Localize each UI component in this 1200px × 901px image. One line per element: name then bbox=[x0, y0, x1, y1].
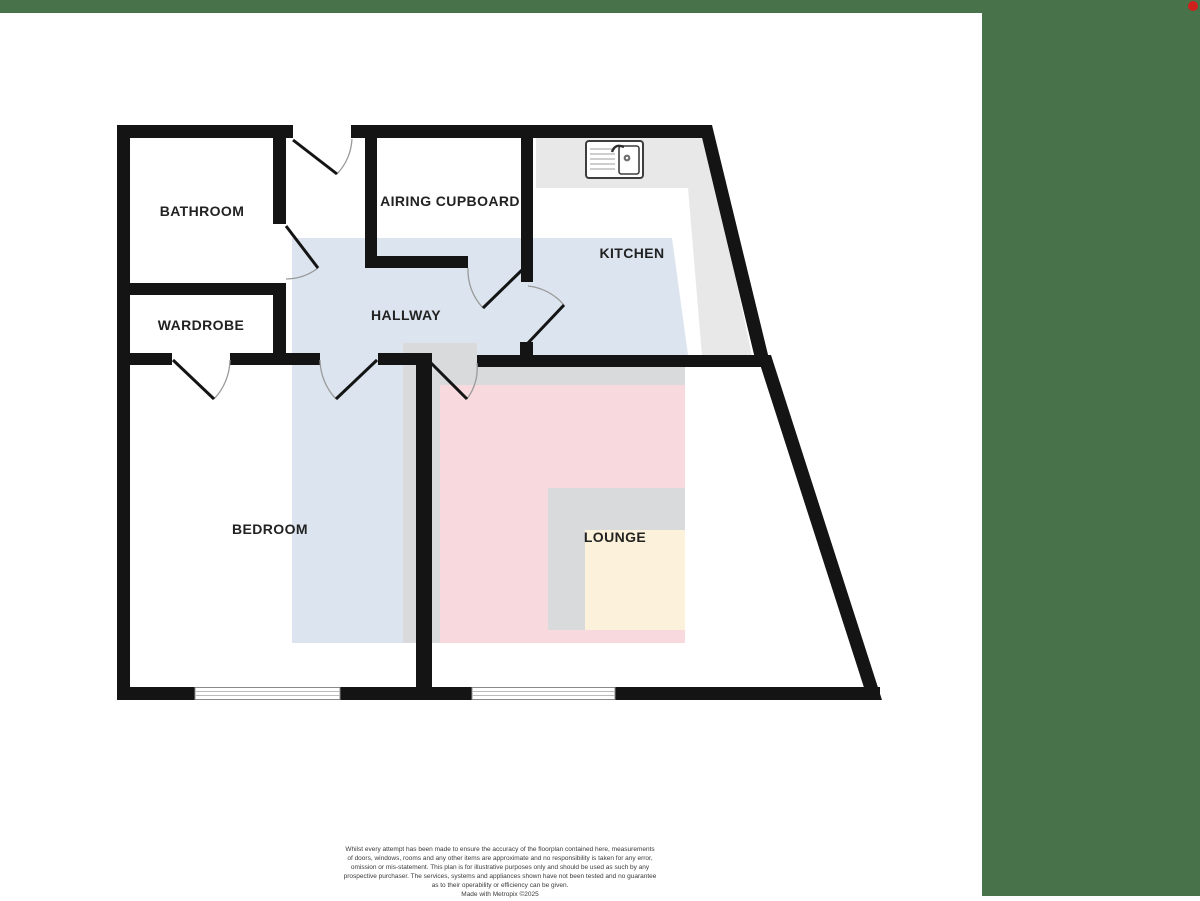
wall-bottom-a bbox=[117, 687, 195, 700]
wall-bathroom-right bbox=[273, 125, 286, 224]
wall-bedroom-top-b bbox=[230, 353, 320, 365]
room-label-hallway: HALLWAY bbox=[371, 307, 441, 323]
lounge-window bbox=[472, 688, 615, 700]
wall-kitchen-door-stub bbox=[520, 342, 533, 367]
zone-lounge-cream bbox=[585, 530, 685, 630]
disclaimer-line: of doors, windows, rooms and any other i… bbox=[200, 855, 800, 864]
disclaimer-line: omission or mis-statement. This plan is … bbox=[200, 864, 800, 873]
wall-bottom-b bbox=[340, 687, 472, 700]
wall-top-left bbox=[117, 125, 293, 138]
floorplan: BATHROOM AIRING CUPBOARD KITCHEN WARDROB… bbox=[0, 0, 1200, 896]
wall-bottom-c bbox=[615, 687, 880, 700]
disclaimer: Whilst every attempt has been made to en… bbox=[200, 846, 800, 900]
wall-airing-left bbox=[365, 125, 377, 268]
disclaimer-line: as to their operability or efficiency ca… bbox=[200, 882, 800, 891]
door-wardrobe bbox=[173, 360, 230, 399]
disclaimer-line: Whilst every attempt has been made to en… bbox=[200, 846, 800, 855]
wall-bedroom-top-a bbox=[117, 353, 172, 365]
room-label-bedroom: BEDROOM bbox=[232, 521, 308, 537]
disclaimer-credit: Made with Metropix ©2025 bbox=[200, 891, 800, 900]
door-entrance bbox=[293, 139, 352, 174]
sink-icon bbox=[586, 141, 643, 178]
floorplan-canvas: BATHROOM AIRING CUPBOARD KITCHEN WARDROB… bbox=[0, 0, 1200, 896]
room-label-lounge: LOUNGE bbox=[584, 529, 646, 545]
room-label-wardrobe: WARDROBE bbox=[158, 317, 244, 333]
wall-left bbox=[117, 125, 130, 700]
wall-bedroom-lounge-divider bbox=[416, 353, 432, 700]
wall-wardrobe-right bbox=[273, 283, 286, 365]
room-label-kitchen: KITCHEN bbox=[599, 245, 664, 261]
wall-slant-lower bbox=[757, 355, 882, 700]
disclaimer-line: prospective purchaser. The services, sys… bbox=[200, 873, 800, 882]
wall-bathroom-bottom bbox=[117, 283, 286, 295]
room-label-airing-cupboard: AIRING CUPBOARD bbox=[380, 193, 520, 209]
bedroom-window bbox=[195, 688, 340, 700]
wall-airing-right bbox=[521, 125, 533, 282]
wall-airing-bottom bbox=[365, 256, 468, 268]
room-label-bathroom: BATHROOM bbox=[160, 203, 245, 219]
